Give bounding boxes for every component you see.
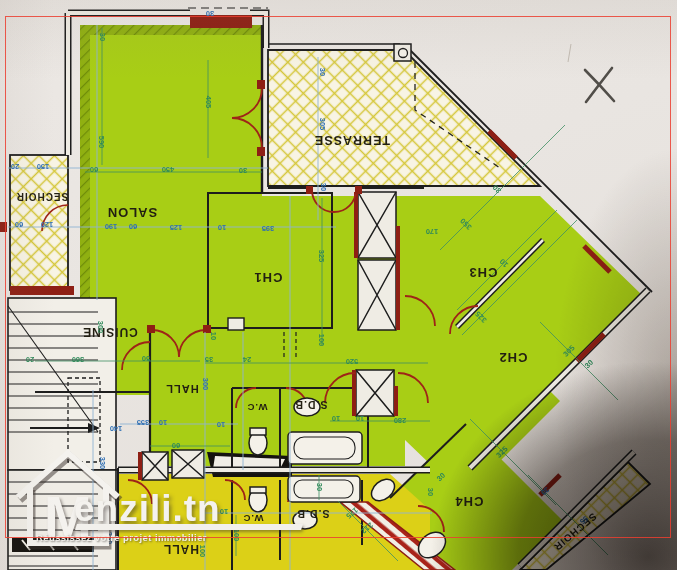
dimension-label: 100 <box>232 529 241 542</box>
dimension-label: 140 <box>110 424 123 433</box>
room-label: W.C <box>243 513 264 524</box>
dimension-label: 170 <box>426 227 439 236</box>
room-label: CH1 <box>253 270 282 285</box>
dimension-label: 60 <box>90 165 98 174</box>
dimension-label: 405 <box>204 96 213 109</box>
dimension-label: 300 <box>96 321 105 334</box>
room-label: CH3 <box>468 265 497 280</box>
dimension-label: 30 <box>583 358 595 370</box>
dimension-label: 10 <box>164 522 172 531</box>
dimension-label: 10 <box>218 223 226 232</box>
floor-plan-photo: SALONSECHOIRTERRASSECH1CH3CH2CH4CUISINEH… <box>0 0 677 570</box>
dimension-label: 10 <box>220 507 228 516</box>
room-label: HALL <box>163 542 199 556</box>
dimension-label: 20 <box>26 355 34 364</box>
dimension-label: 100 <box>198 545 207 558</box>
room-label: SALON <box>107 205 158 220</box>
dimension-label: 250 <box>105 532 114 545</box>
plan-labels: SALONSECHOIRTERRASSECH1CH3CH2CH4CUISINEH… <box>0 0 677 570</box>
dimension-label: 175 <box>344 506 359 521</box>
dimension-label: 325 <box>494 444 509 459</box>
dimension-label: 325 <box>473 309 488 324</box>
room-label: S.D.B <box>296 508 329 520</box>
dimension-label: 305 <box>561 343 576 358</box>
dimension-label: 150 <box>37 162 50 171</box>
dimension-label: 35 <box>205 355 213 364</box>
dimension-label: 395 <box>262 224 275 233</box>
dimension-label: 300 <box>201 378 210 391</box>
dimension-label: 330 <box>98 457 107 470</box>
dimension-label: 10 <box>332 414 340 423</box>
dimension-label: 10 <box>356 414 364 423</box>
dimension-label: 280 <box>394 416 407 425</box>
dimension-label: 50 <box>142 354 150 363</box>
dimension-label: 100 <box>317 334 326 347</box>
room-label: CUISINE <box>82 325 138 339</box>
dimension-label: 30 <box>239 166 247 175</box>
dimension-label: 60 <box>15 220 23 229</box>
dimension-label: 60 <box>172 441 180 450</box>
dimension-label: 30 <box>318 68 327 76</box>
dimension-label: 125 <box>170 223 183 232</box>
dimension-label: 24 <box>243 355 251 364</box>
dimension-label: 350 <box>458 216 473 231</box>
room-label: HALL <box>165 383 198 395</box>
dimension-label: 360 <box>72 355 85 364</box>
dimension-label: 30 <box>206 9 214 18</box>
dimension-label: 20 <box>11 162 19 171</box>
dimension-label: 190 <box>105 222 118 231</box>
dimension-label: 30 <box>539 485 551 497</box>
dimension-label: 212 <box>359 521 374 536</box>
dimension-label: 60 <box>129 222 137 231</box>
dimension-label: 120 <box>41 220 54 229</box>
dimension-label: 305 <box>318 118 327 131</box>
room-label: CH2 <box>498 350 527 365</box>
dimension-label: 30 <box>98 33 107 41</box>
dimension-label: 10 <box>209 332 218 340</box>
dimension-label: 10 <box>159 418 167 427</box>
dimension-label: 30 <box>435 471 447 483</box>
room-label: CH4 <box>454 494 483 509</box>
room-label: SECHOIR <box>16 191 69 202</box>
dimension-label: 590 <box>97 136 106 149</box>
dimension-label: 30 <box>426 488 435 496</box>
dimension-label: 10 <box>498 257 510 269</box>
dimension-label: 450 <box>162 165 175 174</box>
dimension-label: 30 <box>319 183 328 191</box>
room-label: TERRASSE <box>314 133 390 147</box>
dimension-label: 10 <box>217 420 225 429</box>
dimension-label: 30 <box>491 183 503 195</box>
room-label: S.D.B <box>294 399 327 411</box>
room-label: SECHOIR <box>551 511 598 553</box>
dimension-label: 30 <box>315 483 324 491</box>
dimension-label: 520 <box>346 357 359 366</box>
dimension-label: 325 <box>317 250 326 263</box>
room-label: W.C <box>247 402 268 413</box>
dimension-label: 355 <box>137 418 150 427</box>
